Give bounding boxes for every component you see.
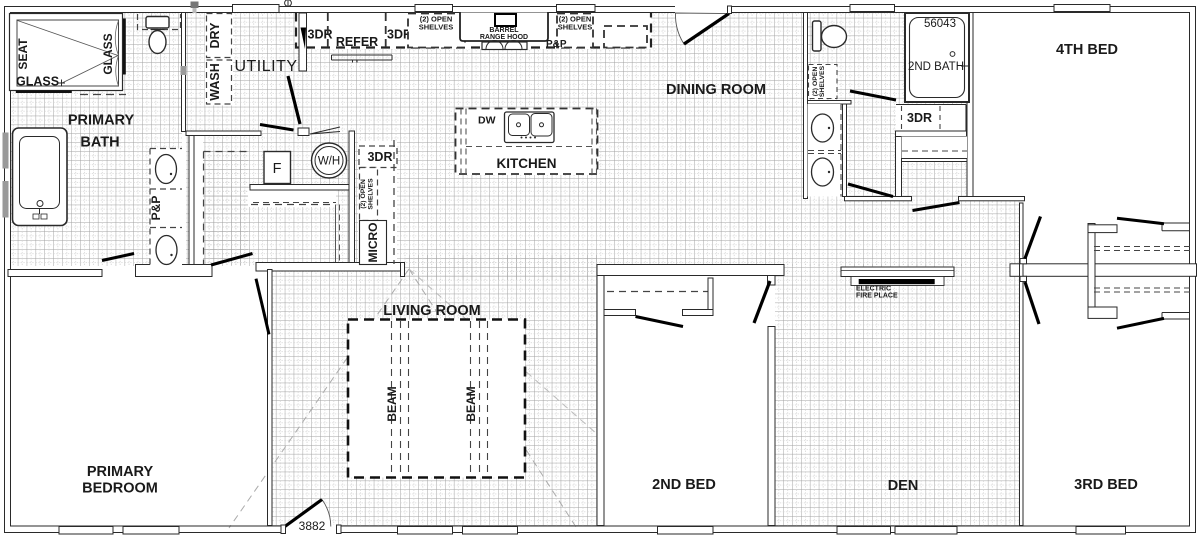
svg-text:SEAT: SEAT (16, 38, 30, 70)
svg-text:RANGE HOOD: RANGE HOOD (480, 34, 528, 41)
svg-text:UTILITY: UTILITY (234, 58, 297, 75)
svg-text:56043: 56043 (924, 18, 956, 30)
svg-text:DRY: DRY (208, 22, 222, 49)
svg-text:BARREL: BARREL (489, 27, 519, 34)
svg-text:DEN: DEN (888, 478, 919, 494)
svg-text:MICRO: MICRO (366, 223, 380, 263)
svg-text:DW: DW (478, 115, 496, 127)
svg-text:W/H: W/H (318, 156, 340, 168)
svg-text:3RD BED: 3RD BED (1074, 477, 1138, 493)
svg-text:SHELVES: SHELVES (368, 178, 375, 210)
svg-text:2ND BATH: 2ND BATH (908, 61, 964, 73)
svg-text:(2) OPEN: (2) OPEN (360, 179, 367, 209)
svg-text:FIRE PLACE: FIRE PLACE (856, 293, 898, 300)
svg-text:DINING ROOM: DINING ROOM (666, 82, 766, 98)
svg-text:3DR: 3DR (308, 28, 333, 42)
svg-text:P&P: P&P (149, 196, 163, 221)
svg-text:3882: 3882 (299, 519, 326, 533)
svg-text:BEAM: BEAM (385, 386, 399, 421)
svg-text:3DR: 3DR (907, 111, 932, 125)
svg-text:KITCHEN: KITCHEN (497, 156, 557, 171)
svg-text:4TH BED: 4TH BED (1056, 42, 1118, 58)
svg-text:PRIMARY: PRIMARY (68, 113, 135, 129)
svg-text:3DR: 3DR (367, 150, 392, 164)
svg-text:ELECTRIC: ELECTRIC (856, 286, 891, 293)
svg-text:WASH: WASH (208, 63, 222, 101)
svg-text:SHELVES: SHELVES (819, 65, 826, 97)
svg-text:BEDROOM: BEDROOM (82, 481, 158, 497)
svg-text:PRIMARY: PRIMARY (87, 464, 154, 480)
svg-text:GLASS: GLASS (16, 75, 59, 89)
svg-text:LIVING ROOM: LIVING ROOM (383, 303, 480, 319)
svg-text:GLASS: GLASS (101, 33, 115, 74)
svg-text:BEAM: BEAM (464, 386, 478, 421)
svg-text:SHELVES: SHELVES (419, 23, 453, 32)
svg-text:BATH: BATH (80, 135, 119, 151)
svg-text:F: F (273, 161, 282, 177)
svg-text:P&P: P&P (546, 39, 567, 50)
svg-text:(2) OPEN: (2) OPEN (812, 67, 819, 97)
svg-text:SHELVES: SHELVES (558, 23, 592, 32)
svg-text:REFER: REFER (336, 35, 378, 49)
svg-text:2ND BED: 2ND BED (652, 477, 716, 493)
